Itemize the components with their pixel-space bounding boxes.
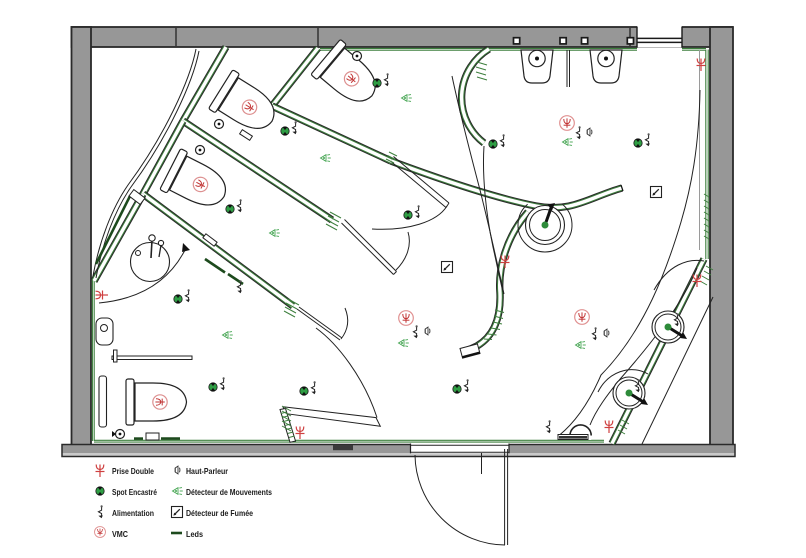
svg-text:Leds: Leds bbox=[186, 529, 203, 539]
svg-text:Détecteur de Mouvements: Détecteur de Mouvements bbox=[186, 487, 272, 497]
svg-text:Prise Double: Prise Double bbox=[112, 466, 154, 476]
svg-text:Haut-Parleur: Haut-Parleur bbox=[186, 466, 229, 476]
svg-text:Spot Encastré: Spot Encastré bbox=[112, 487, 157, 497]
svg-text:VMC: VMC bbox=[112, 529, 128, 539]
svg-text:Détecteur de Fumée: Détecteur de Fumée bbox=[186, 508, 253, 518]
svg-text:Alimentation: Alimentation bbox=[112, 508, 154, 518]
